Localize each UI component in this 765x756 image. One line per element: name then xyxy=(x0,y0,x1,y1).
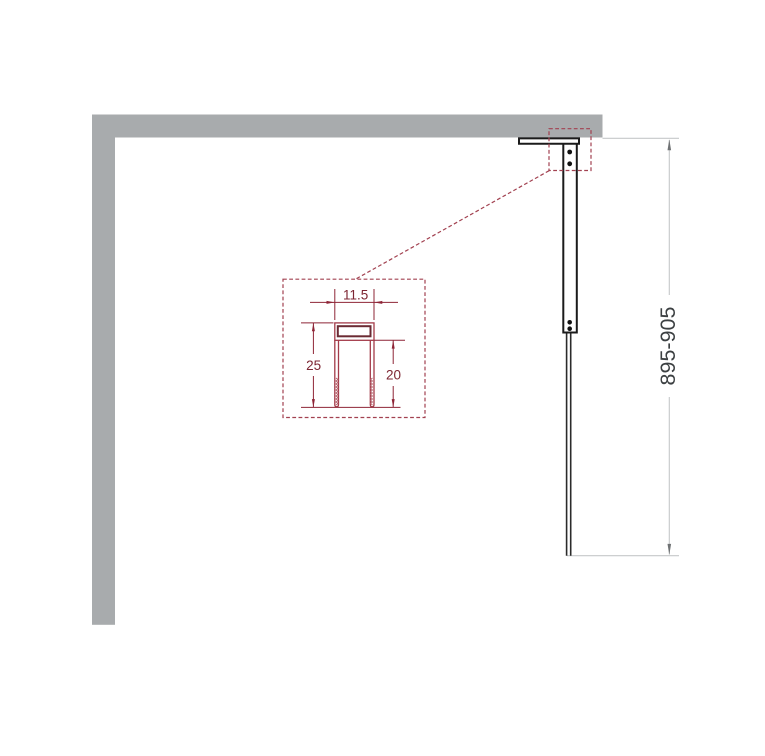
svg-text:25: 25 xyxy=(306,358,321,373)
svg-text:20: 20 xyxy=(386,368,401,383)
svg-text:11.5: 11.5 xyxy=(343,287,368,302)
svg-text:895-905: 895-905 xyxy=(656,307,680,386)
